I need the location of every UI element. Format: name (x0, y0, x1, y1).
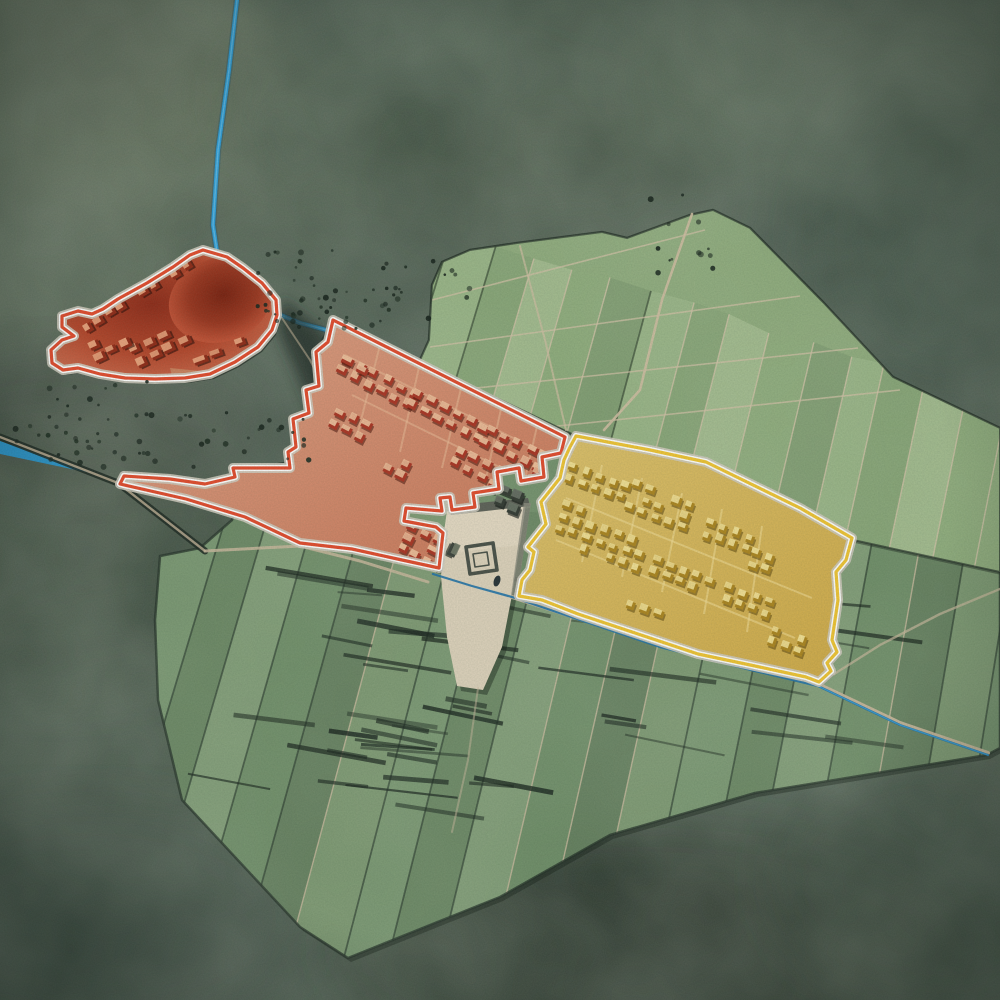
texture-overlay (0, 0, 1000, 1000)
site-map-svg (0, 0, 1000, 1000)
archaeological-site-reconstruction-map (0, 0, 1000, 1000)
